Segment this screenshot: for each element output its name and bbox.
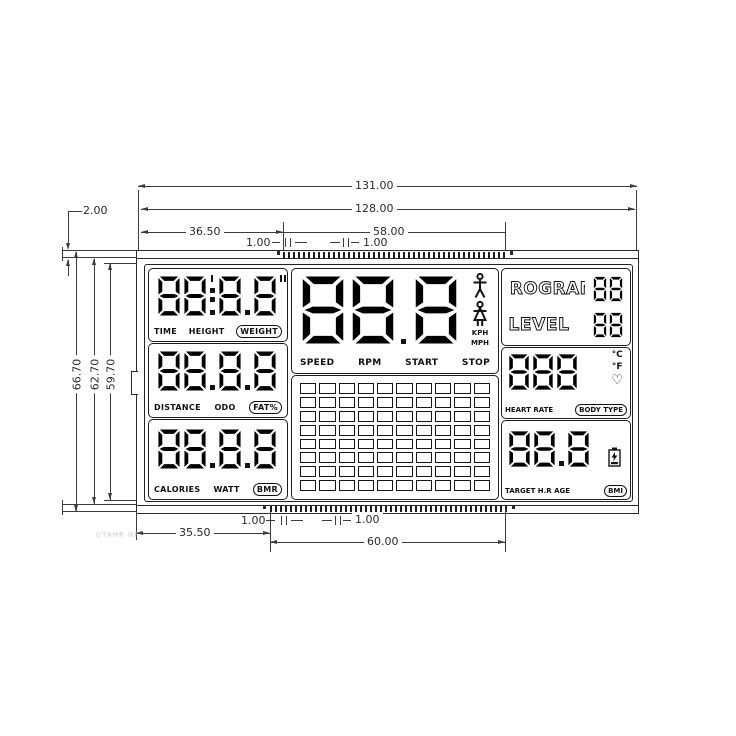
matrix-tile	[300, 411, 316, 422]
digit-8	[183, 275, 207, 317]
matrix-tile	[377, 425, 393, 436]
male-figure-icon	[472, 273, 488, 299]
dot-matrix-cell	[291, 375, 499, 500]
matrix-tile	[319, 411, 335, 422]
heart-icon: ♡	[611, 374, 623, 388]
time-height-weight-cell: TIME HEIGHT WEIGHT	[148, 268, 288, 342]
fat-percent-label: FAT%	[249, 401, 282, 414]
pitch-mark	[281, 516, 287, 525]
matrix-tile	[416, 466, 432, 477]
matrix-tile	[454, 439, 470, 450]
matrix-tile	[300, 452, 316, 463]
calories-watt-bmr-cell: CALORIES WATT BMR	[148, 419, 288, 500]
matrix-tile	[339, 397, 355, 408]
arrow	[74, 251, 78, 258]
svg-text:LEVEL: LEVEL	[509, 314, 569, 334]
time-separator	[209, 275, 216, 317]
tick	[330, 242, 340, 243]
heart-rate-label: HEART RATE	[505, 406, 553, 414]
lcd-dimensional-drawing: 131.00 128.00 36.50 58.00 1.00 1.00 2.00	[0, 0, 736, 736]
digit-8	[253, 350, 277, 392]
decimal-point	[558, 430, 565, 468]
target-digits	[508, 430, 590, 468]
matrix-tile	[435, 466, 451, 477]
matrix-tile	[396, 452, 412, 463]
time-label: TIME	[154, 327, 177, 336]
decimal-point	[244, 350, 251, 392]
matrix-tile	[435, 480, 451, 491]
inch-mark	[279, 275, 287, 317]
extension-line	[138, 190, 139, 250]
matrix-tile	[377, 480, 393, 491]
matrix-tile	[474, 466, 490, 477]
speed-icon-column: KPH MPH	[465, 273, 495, 347]
digit-8	[413, 274, 459, 346]
arrow	[141, 230, 148, 234]
glass-side-tab	[131, 371, 138, 395]
matrix-tile	[416, 425, 432, 436]
matrix-tile	[416, 452, 432, 463]
matrix-tile	[416, 397, 432, 408]
digit-8	[218, 350, 242, 392]
rpm-label: RPM	[358, 358, 381, 368]
battery-icon	[608, 447, 621, 467]
matrix-tile	[454, 397, 470, 408]
digit-8	[532, 353, 554, 391]
arrow	[66, 259, 70, 266]
matrix-tile	[454, 411, 470, 422]
decimal-point	[244, 428, 251, 470]
matrix-tile	[319, 480, 335, 491]
pitch-mark	[285, 238, 291, 247]
tick	[322, 520, 332, 521]
matrix-tile	[339, 439, 355, 450]
dim-height-inner-label: 59.70	[104, 356, 117, 394]
matrix-tile	[377, 383, 393, 394]
display-area-outline: TIME HEIGHT WEIGHT DISTANCE ODO FAT% CAL…	[144, 264, 633, 502]
dim-bottom-pitch-left-label: 1.00	[238, 514, 269, 527]
target-cell-labels: TARGET H.R AGE BMI	[505, 485, 627, 497]
distance-digits	[157, 350, 277, 392]
dim-inner-width-label: 128.00	[352, 202, 397, 215]
program-digits	[593, 276, 623, 302]
distance-label: DISTANCE	[154, 403, 201, 412]
matrix-tile	[300, 383, 316, 394]
watt-label: WATT	[213, 485, 239, 494]
matrix-tile	[300, 480, 316, 491]
pin-end-marker-bottom	[512, 505, 515, 509]
speed-cell-labels: SPEED RPM START STOP	[300, 358, 490, 368]
height-label: HEIGHT	[189, 327, 225, 336]
digit-8	[556, 353, 578, 391]
bmr-label: BMR	[253, 483, 282, 496]
digit-8	[157, 350, 181, 392]
arrow	[263, 531, 270, 535]
connector-pads-top	[283, 252, 505, 258]
decimal-point	[400, 274, 409, 346]
matrix-tile	[396, 425, 412, 436]
lcd-glass-outline: TIME HEIGHT WEIGHT DISTANCE ODO FAT% CAL…	[136, 250, 639, 514]
matrix-tile	[358, 411, 374, 422]
digit-8	[253, 275, 277, 317]
matrix-tile	[358, 397, 374, 408]
matrix-tile	[396, 439, 412, 450]
digit-8	[157, 275, 181, 317]
arrow	[630, 184, 637, 188]
speed-digits	[300, 274, 459, 346]
matrix-tile	[474, 411, 490, 422]
digit-8	[183, 350, 207, 392]
matrix-tile	[454, 425, 470, 436]
decimal-point	[244, 275, 251, 317]
target-hr-age-cell: TARGET H.R AGE BMI	[501, 420, 631, 500]
tick	[272, 242, 280, 243]
matrix-tile	[377, 466, 393, 477]
distance-odo-fat-cell: DISTANCE ODO FAT%	[148, 343, 288, 418]
speed-cell: KPH MPH SPEED RPM START STOP	[291, 268, 499, 374]
arrow	[141, 207, 148, 211]
pitch-mark	[335, 516, 341, 525]
arrow	[628, 207, 635, 211]
matrix-tile	[454, 480, 470, 491]
matrix-tile	[319, 439, 335, 450]
matrix-tile	[435, 425, 451, 436]
extension-line	[62, 247, 63, 261]
matrix-tile	[396, 383, 412, 394]
matrix-tile	[300, 397, 316, 408]
matrix-tile	[435, 383, 451, 394]
digit-8	[533, 430, 556, 468]
digit-8	[593, 276, 607, 302]
matrix-tile	[358, 425, 374, 436]
matrix-tile	[474, 425, 490, 436]
heart-rate-digits	[508, 353, 578, 391]
matrix-tile	[358, 439, 374, 450]
matrix-tile	[474, 383, 490, 394]
level-row: LEVEL	[509, 310, 623, 340]
heart-rate-cell: °C °F ♡ HEART RATE BODY TYPE	[501, 347, 631, 419]
svg-text:PROGRAM: PROGRAM	[509, 278, 585, 298]
tick	[291, 520, 303, 521]
matrix-tile	[435, 452, 451, 463]
matrix-tile	[474, 397, 490, 408]
kph-label: KPH	[472, 329, 488, 337]
tick	[295, 242, 307, 243]
matrix-tile	[358, 466, 374, 477]
decimal-point	[209, 428, 216, 470]
matrix-tile	[435, 439, 451, 450]
calories-digits	[157, 428, 277, 470]
dim-top-left-span-label: 36.50	[186, 225, 224, 238]
matrix-tile	[435, 411, 451, 422]
matrix-tile	[474, 480, 490, 491]
matrix-tile	[319, 466, 335, 477]
matrix-tile	[300, 439, 316, 450]
digit-8	[157, 428, 181, 470]
matrix-tile	[474, 452, 490, 463]
extension-line	[62, 500, 63, 515]
dim-bottom-pitch-right-label: 1.00	[352, 513, 383, 526]
calories-label: CALORIES	[154, 485, 200, 494]
matrix-tile	[454, 466, 470, 477]
connector-pads-bottom	[270, 506, 510, 512]
start-label: START	[405, 358, 438, 368]
extension-line	[505, 508, 506, 552]
digit-8	[508, 430, 531, 468]
matrix-tile	[339, 425, 355, 436]
dot-matrix-grid	[300, 383, 490, 491]
program-label: PROGRAM	[509, 278, 585, 300]
temperature-unit-column: °C °F ♡	[611, 350, 623, 388]
matrix-tile	[339, 411, 355, 422]
program-level-cell: PROGRAM LEVEL	[501, 268, 631, 346]
distance-cell-labels: DISTANCE ODO FAT%	[154, 401, 282, 414]
arrow	[138, 184, 145, 188]
matrix-tile	[319, 452, 335, 463]
matrix-tile	[396, 466, 412, 477]
extension-line	[283, 222, 284, 252]
calories-cell-labels: CALORIES WATT BMR	[154, 483, 282, 496]
matrix-tile	[377, 411, 393, 422]
matrix-tile	[435, 397, 451, 408]
matrix-tile	[339, 383, 355, 394]
dim-top-pitch-right-label: 1.00	[360, 236, 391, 249]
digit-8	[218, 275, 242, 317]
odo-label: ODO	[214, 403, 235, 412]
matrix-tile	[358, 480, 374, 491]
matrix-tile	[319, 397, 335, 408]
arrow	[92, 497, 96, 504]
level-label: LEVEL	[509, 314, 569, 336]
faint-watermark: UTAHR HF	[96, 531, 139, 539]
time-digits	[157, 275, 287, 317]
matrix-tile	[454, 452, 470, 463]
matrix-tile	[319, 383, 335, 394]
arrow	[498, 540, 505, 544]
matrix-tile	[377, 452, 393, 463]
matrix-tile	[358, 383, 374, 394]
arrow	[66, 243, 70, 250]
matrix-tile	[377, 439, 393, 450]
matrix-tile	[339, 480, 355, 491]
dim-bottom-pad-span-label: 60.00	[364, 535, 402, 548]
extension-line	[270, 512, 271, 552]
matrix-tile	[339, 452, 355, 463]
digit-8	[253, 428, 277, 470]
matrix-tile	[300, 425, 316, 436]
digit-8	[300, 274, 346, 346]
mph-label: MPH	[471, 339, 489, 347]
matrix-tile	[339, 466, 355, 477]
pin-1-marker	[277, 251, 280, 255]
dim-height-outer-label: 66.70	[70, 356, 83, 394]
arrow	[92, 258, 96, 265]
speed-label: SPEED	[300, 358, 334, 368]
pin-1-marker-bottom	[263, 505, 266, 509]
dim-corner-gap-label: 2.00	[80, 204, 111, 217]
digit-8	[350, 274, 396, 346]
digit-8	[609, 312, 623, 338]
dim-top-pitch-left-label: 1.00	[243, 236, 274, 249]
bmi-label: BMI	[604, 485, 627, 497]
female-figure-icon	[472, 301, 488, 327]
dim-height-middle-label: 62.70	[88, 356, 101, 394]
arrow	[276, 230, 283, 234]
matrix-tile	[319, 425, 335, 436]
digit-8	[508, 353, 530, 391]
seal-line-top	[137, 258, 638, 259]
stop-label: STOP	[462, 358, 490, 368]
matrix-tile	[416, 480, 432, 491]
matrix-tile	[416, 383, 432, 394]
target-hr-age-label: TARGET H.R AGE	[505, 487, 570, 495]
matrix-tile	[474, 439, 490, 450]
matrix-tile	[396, 411, 412, 422]
extension-line	[636, 190, 637, 250]
program-row: PROGRAM	[509, 274, 623, 304]
level-digits	[593, 312, 623, 338]
arrow	[270, 540, 277, 544]
extension-line	[62, 504, 136, 505]
body-type-label: BODY TYPE	[575, 404, 627, 416]
tick	[343, 520, 351, 521]
weight-label: WEIGHT	[236, 325, 282, 338]
tick	[266, 520, 275, 521]
matrix-tile	[300, 466, 316, 477]
digit-8	[218, 428, 242, 470]
matrix-tile	[358, 452, 374, 463]
digit-8	[593, 312, 607, 338]
time-cell-labels: TIME HEIGHT WEIGHT	[154, 325, 282, 338]
digit-8	[567, 430, 590, 468]
dim-overall-width-label: 131.00	[352, 179, 397, 192]
digit-8	[183, 428, 207, 470]
matrix-tile	[396, 397, 412, 408]
digit-8	[609, 276, 623, 302]
decimal-point	[209, 350, 216, 392]
extension-line	[62, 511, 136, 512]
heart-cell-labels: HEART RATE BODY TYPE	[505, 404, 627, 416]
matrix-tile	[396, 480, 412, 491]
matrix-tile	[454, 383, 470, 394]
celsius-label: °C	[612, 350, 623, 361]
arrow	[108, 493, 112, 500]
arrow	[108, 263, 112, 270]
leader-line	[68, 211, 69, 245]
fahrenheit-label: °F	[612, 362, 623, 373]
pitch-mark	[343, 238, 349, 247]
pin-end-marker	[510, 251, 513, 255]
matrix-tile	[416, 411, 432, 422]
tick	[68, 211, 82, 212]
dim-bottom-left-span-label: 35.50	[176, 526, 214, 539]
matrix-tile	[416, 439, 432, 450]
tick	[351, 242, 359, 243]
matrix-tile	[377, 397, 393, 408]
